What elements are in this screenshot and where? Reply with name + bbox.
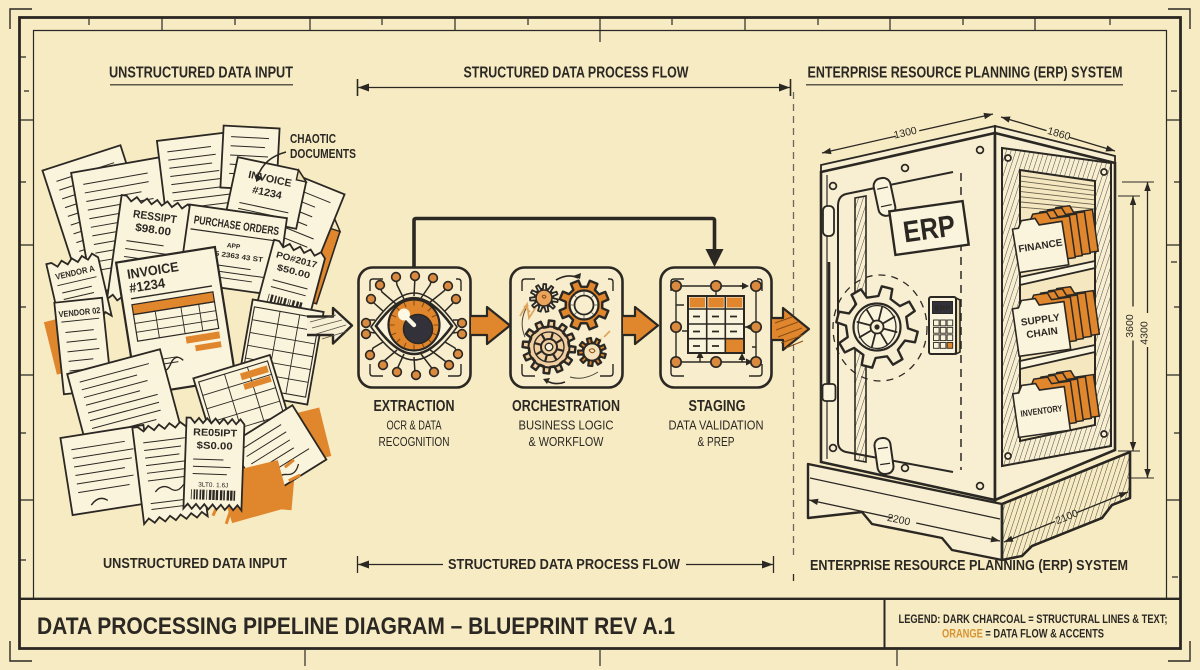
svg-text:& PREP: & PREP bbox=[698, 435, 735, 449]
svg-text:EXTRACTION: EXTRACTION bbox=[374, 398, 455, 415]
svg-text:UNSTRUCTURED DATA INPUT: UNSTRUCTURED DATA INPUT bbox=[103, 555, 287, 572]
svg-text:ORCHESTRATION: ORCHESTRATION bbox=[512, 398, 620, 415]
svg-text:LEGEND: DARK CHARCOAL = STRUCT: LEGEND: DARK CHARCOAL = STRUCTURAL LINES… bbox=[899, 612, 1168, 626]
svg-text:STAGING: STAGING bbox=[689, 398, 746, 415]
svg-text:ENTERPRISE RESOURCE PLANNING (: ENTERPRISE RESOURCE PLANNING (ERP) SYSTE… bbox=[808, 65, 1123, 82]
svg-text:RE05IPT: RE05IPT bbox=[193, 427, 237, 440]
svg-text:3600: 3600 bbox=[1124, 314, 1136, 338]
svg-text:DATA PROCESSING PIPELINE DIAGR: DATA PROCESSING PIPELINE DIAGRAM – BLUEP… bbox=[37, 613, 675, 640]
svg-text:STRUCTURED DATA PROCESS FLOW: STRUCTURED DATA PROCESS FLOW bbox=[448, 556, 681, 573]
svg-text:3LT0. 1.6J: 3LT0. 1.6J bbox=[198, 481, 228, 489]
svg-text:ORANGE = DATA FLOW & ACCENTS: ORANGE = DATA FLOW & ACCENTS bbox=[942, 627, 1104, 641]
svg-text:STRUCTURED DATA PROCESS FLOW: STRUCTURED DATA PROCESS FLOW bbox=[464, 65, 689, 82]
svg-text:$S0.00: $S0.00 bbox=[196, 440, 233, 452]
svg-text:ERP: ERP bbox=[935, 304, 950, 313]
svg-text:BUSINESS LOGIC: BUSINESS LOGIC bbox=[519, 419, 614, 433]
svg-text:4300: 4300 bbox=[1139, 321, 1151, 345]
svg-text:OCR & DATA: OCR & DATA bbox=[387, 419, 442, 433]
svg-text:ENTERPRISE RESOURCE PLANNING (: ENTERPRISE RESOURCE PLANNING (ERP) SYSTE… bbox=[810, 557, 1128, 574]
svg-text:RECOGNITION: RECOGNITION bbox=[379, 435, 450, 449]
svg-text:UNSTRUCTURED DATA INPUT: UNSTRUCTURED DATA INPUT bbox=[109, 65, 293, 82]
svg-text:DATA VALIDATION: DATA VALIDATION bbox=[669, 419, 764, 433]
svg-text:DOCUMENTS: DOCUMENTS bbox=[290, 147, 356, 161]
svg-text:& WORKFLOW: & WORKFLOW bbox=[529, 435, 604, 449]
svg-text:CHAOTIC: CHAOTIC bbox=[290, 132, 336, 146]
